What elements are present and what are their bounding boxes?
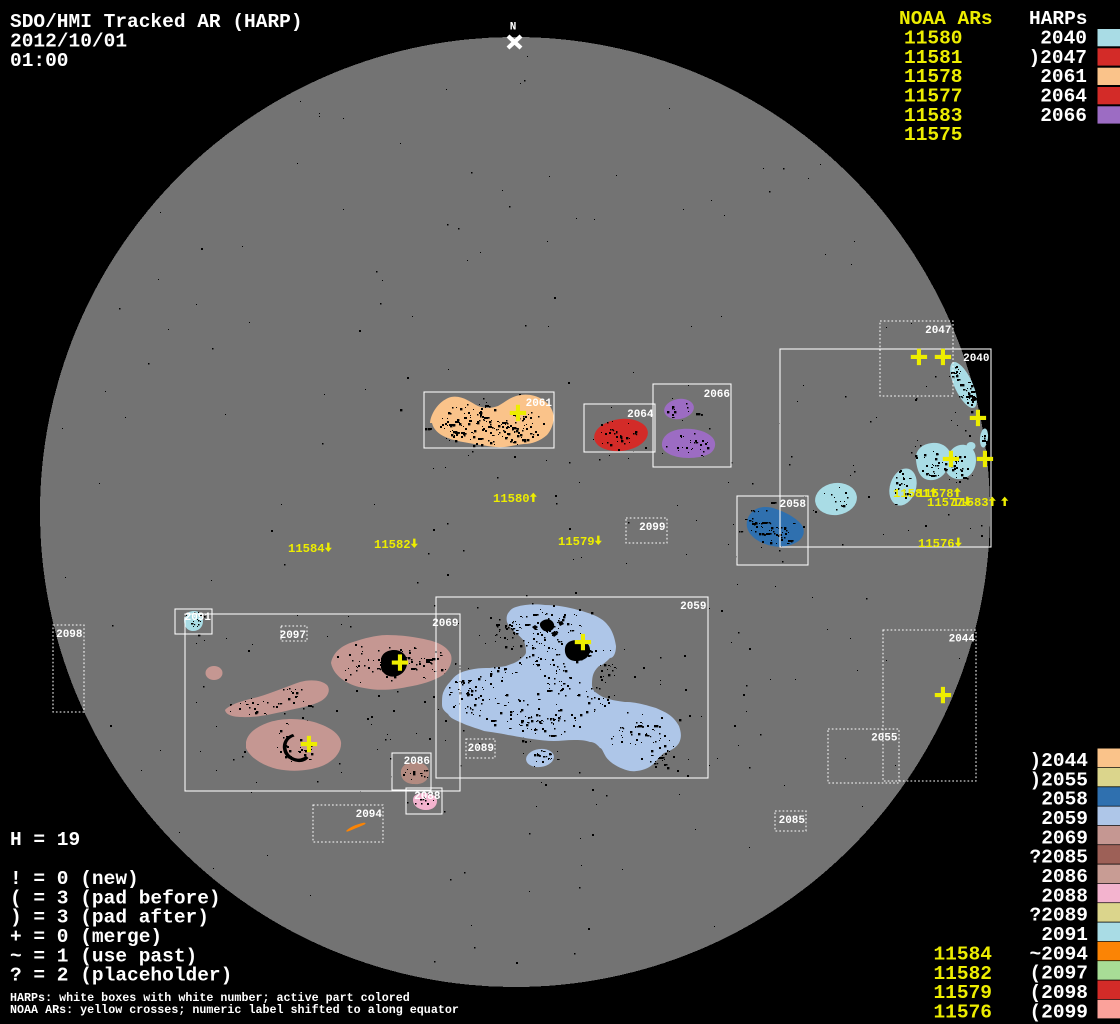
svg-text:H = 19: H = 19 xyxy=(10,829,80,851)
svg-text:2047: 2047 xyxy=(925,325,951,337)
svg-text:2085: 2085 xyxy=(779,815,806,827)
svg-text:2055: 2055 xyxy=(871,733,898,745)
svg-text:2097: 2097 xyxy=(280,630,306,642)
svg-text:11576: 11576 xyxy=(933,1001,992,1023)
svg-text:2088: 2088 xyxy=(414,791,441,803)
svg-text:11575: 11575 xyxy=(904,124,963,146)
svg-text:2089: 2089 xyxy=(468,743,494,755)
svg-text:? = 2 (placeholder): ? = 2 (placeholder) xyxy=(10,965,232,987)
svg-text:2094: 2094 xyxy=(356,809,383,821)
svg-text:(2099: (2099 xyxy=(1029,1001,1088,1023)
svg-text:01:00: 01:00 xyxy=(10,50,69,72)
svg-text:NOAA ARs: yellow crosses; nume: NOAA ARs: yellow crosses; numeric label … xyxy=(10,1003,459,1017)
svg-text:11579: 11579 xyxy=(558,535,595,549)
svg-text:2098: 2098 xyxy=(56,629,83,641)
svg-text:2061: 2061 xyxy=(526,398,553,410)
svg-text:2066: 2066 xyxy=(1040,105,1087,127)
svg-text:2058: 2058 xyxy=(780,499,807,511)
svg-text:11583: 11583 xyxy=(952,496,989,510)
svg-text:11582: 11582 xyxy=(374,538,411,552)
svg-text:2099: 2099 xyxy=(639,522,665,534)
svg-text:2044: 2044 xyxy=(949,634,976,646)
svg-text:11584: 11584 xyxy=(288,542,325,556)
svg-text:2086: 2086 xyxy=(404,756,430,768)
svg-text:2064: 2064 xyxy=(627,409,654,421)
svg-text:11576: 11576 xyxy=(918,537,955,551)
svg-text:2040: 2040 xyxy=(963,353,989,365)
svg-text:11580: 11580 xyxy=(493,492,530,506)
svg-text:2066: 2066 xyxy=(704,389,730,401)
svg-text:N: N xyxy=(510,22,517,34)
svg-text:2059: 2059 xyxy=(680,601,706,613)
